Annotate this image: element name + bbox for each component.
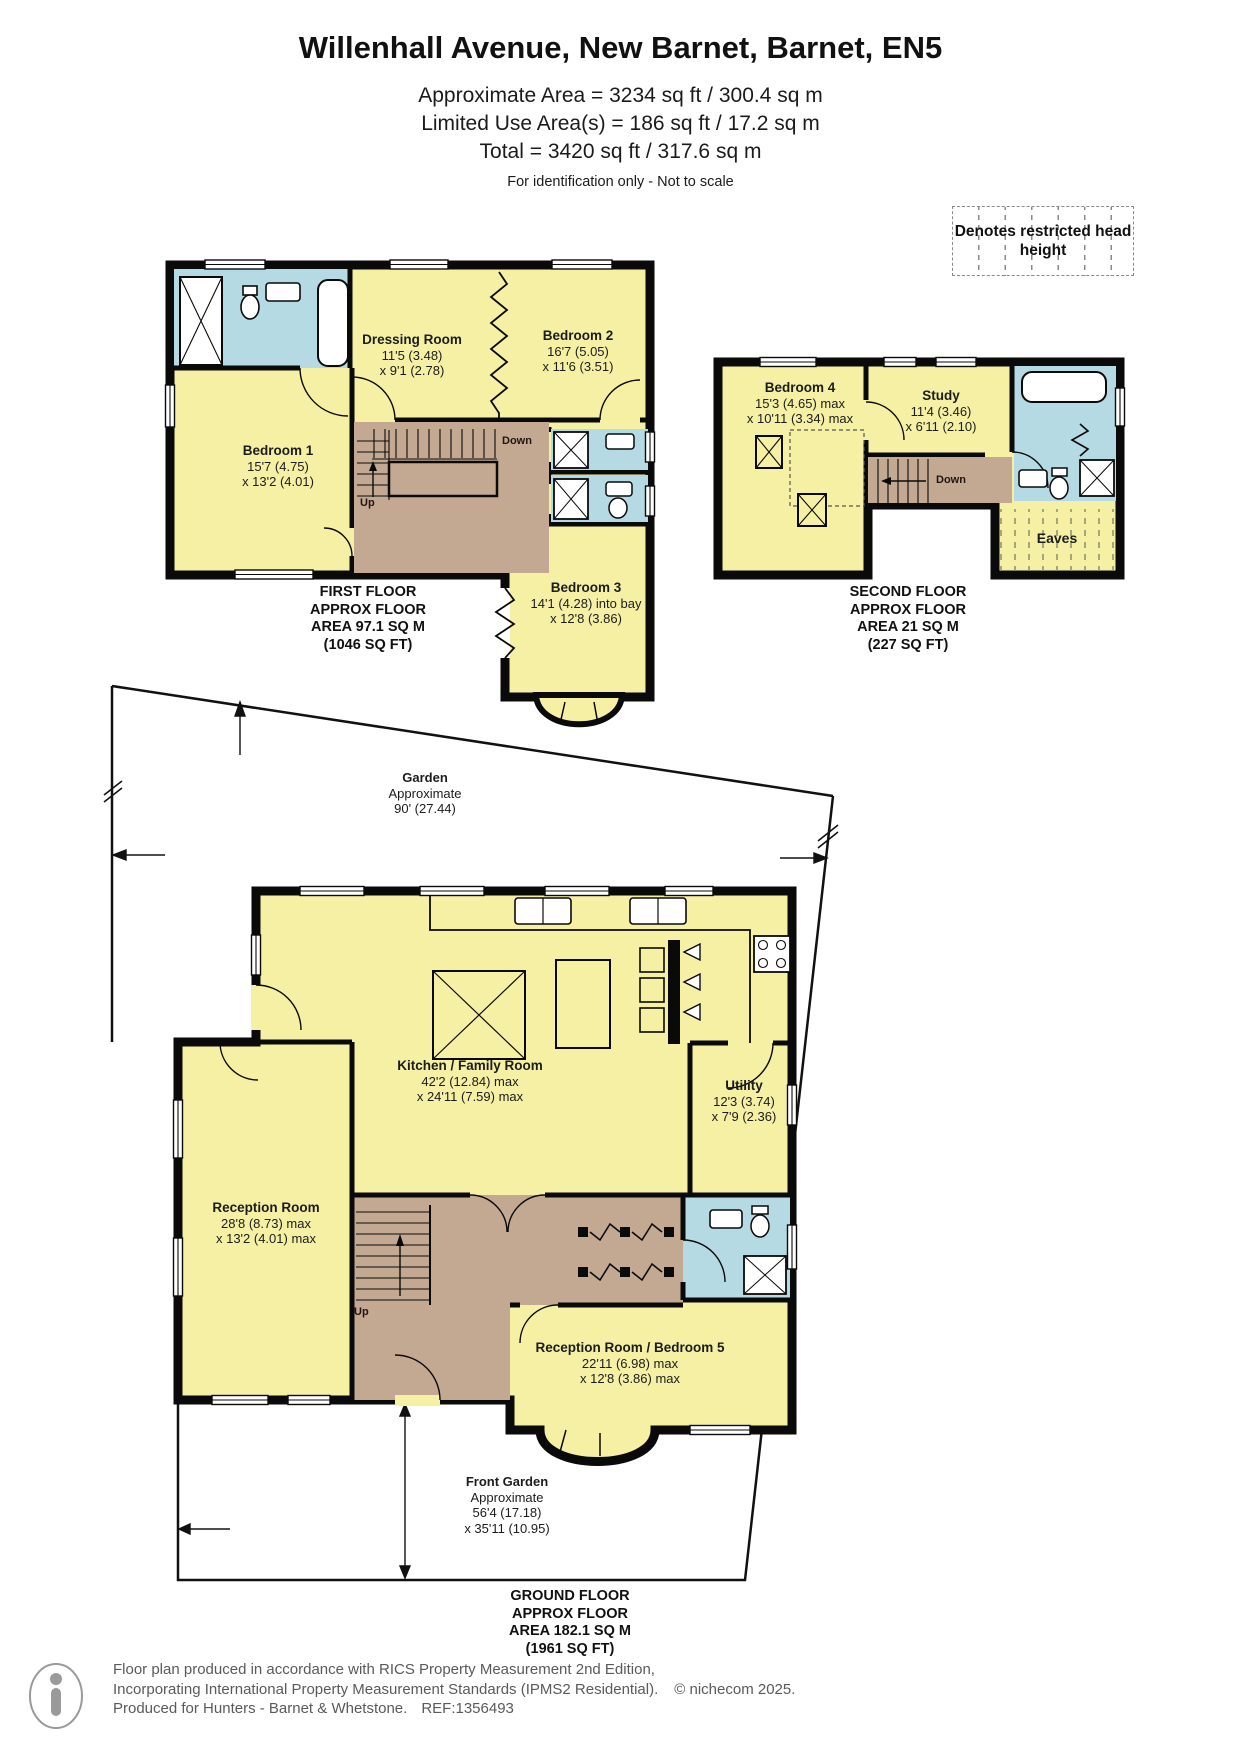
caption-line: (1961 SQ FT) (509, 1641, 631, 1659)
footer-line2: Incorporating International Property Mea… (113, 1680, 795, 1700)
hob-icon (754, 936, 790, 972)
front-garden-dims: 56'4 (17.18) (464, 1505, 549, 1521)
room-dims: x 11'6 (3.51) (543, 359, 614, 375)
footer-produced-for: Produced for Hunters - Barnet & Whetston… (113, 1700, 407, 1717)
restricted-head-height-legend: Denotes restricted head height (952, 206, 1134, 276)
bath-icon (318, 280, 348, 366)
approximate-area-line: Approximate Area = 3234 sq ft / 300.4 sq… (0, 84, 1241, 108)
front-garden-name: Front Garden (464, 1474, 549, 1490)
room-label-bedroom2: Bedroom 2 16'7 (5.05) x 11'6 (3.51) (543, 328, 614, 375)
footer: Floor plan produced in accordance with R… (113, 1660, 795, 1719)
room-name: Dressing Room (362, 332, 462, 348)
shower-rooms (551, 429, 648, 522)
front-garden-dims: Approximate (464, 1490, 549, 1506)
eaves-label: Eaves (1037, 530, 1077, 546)
room-dims: 22'11 (6.98) max (535, 1356, 724, 1372)
room-dims: 11'5 (3.48) (362, 348, 462, 364)
room-dims: x 24'11 (7.59) max (397, 1089, 543, 1105)
ground-floor-bathroom (683, 1195, 790, 1300)
room-name: Bedroom 1 (242, 443, 314, 459)
room-label-kitchen-family: Kitchen / Family Room 42'2 (12.84) max x… (397, 1058, 543, 1105)
kitchen-sink-icon (630, 898, 686, 924)
room-dims: x 13'2 (4.01) (242, 474, 314, 490)
caption-line: APPROX FLOOR (509, 1606, 631, 1624)
second-floor-caption: SECOND FLOOR APPROX FLOOR AREA 21 SQ M (… (850, 584, 967, 654)
room-dims: x 7'9 (2.36) (712, 1109, 777, 1125)
front-garden-dims: x 35'11 (10.95) (464, 1521, 549, 1537)
front-door-gap (395, 1395, 440, 1406)
room-label-bedroom1: Bedroom 1 15'7 (4.75) x 13'2 (4.01) (242, 443, 314, 490)
stair-label-up: Up (360, 497, 375, 509)
front-garden-label: Front Garden Approximate 56'4 (17.18) x … (464, 1474, 549, 1536)
footer-line3: Produced for Hunters - Barnet & Whetston… (113, 1699, 795, 1719)
toilet-icon (752, 1206, 768, 1214)
room-label-dressing-room: Dressing Room 11'5 (3.48) x 9'1 (2.78) (362, 332, 462, 379)
caption-line: (1046 SQ FT) (310, 637, 426, 655)
footer-line1: Floor plan produced in accordance with R… (113, 1660, 795, 1680)
room-dims: 15'7 (4.75) (242, 459, 314, 475)
bath-icon (1022, 372, 1106, 402)
garden-dims: 90' (27.44) (389, 801, 462, 817)
caption-line: APPROX FLOOR (850, 602, 967, 620)
room-name: Utility (712, 1078, 777, 1094)
garden-dims: Approximate (389, 786, 462, 802)
stair-label-down: Down (936, 474, 966, 486)
window-gap (499, 588, 510, 658)
door-gap (251, 985, 262, 1030)
sink-icon (1019, 470, 1047, 487)
stair-label-up: Up (354, 1306, 369, 1318)
toilet-icon (1052, 468, 1067, 476)
room-name: Study (906, 388, 977, 404)
caption-line: FIRST FLOOR (310, 584, 426, 602)
room-dims: 28'8 (8.73) max (212, 1216, 319, 1232)
disclaimer-text: For identification only - Not to scale (0, 174, 1241, 190)
caption-line: (227 SQ FT) (850, 637, 967, 655)
sink-icon (266, 283, 300, 301)
garden-label: Garden Approximate 90' (27.44) (389, 770, 462, 817)
stair-label-down: Down (502, 435, 532, 447)
room-dims: 12'3 (3.74) (712, 1094, 777, 1110)
footer-copyright: © nichecom 2025. (674, 1681, 795, 1698)
person-scale-icon (26, 1662, 90, 1732)
toilet-icon (243, 286, 257, 295)
sink-icon (606, 482, 632, 496)
room-dims: 16'7 (5.05) (543, 344, 614, 360)
room-name: Kitchen / Family Room (397, 1058, 543, 1074)
first-floor-caption: FIRST FLOOR APPROX FLOOR AREA 97.1 SQ M … (310, 584, 426, 654)
total-area-line: Total = 3420 sq ft / 317.6 sq m (0, 140, 1241, 164)
kitchen-island (556, 960, 610, 1048)
caption-line: APPROX FLOOR (310, 602, 426, 620)
room-dims: x 13'2 (4.01) max (212, 1231, 319, 1247)
second-floor-bathroom (1012, 366, 1116, 501)
ground-floor-plan (95, 675, 855, 1590)
room-dims: 15'3 (4.65) max (747, 396, 853, 412)
room-dims: 42'2 (12.84) max (397, 1074, 543, 1090)
sink-icon (606, 434, 634, 449)
kitchen-table (433, 971, 525, 1059)
caption-line: AREA 21 SQ M (850, 619, 967, 637)
footer-reference: REF:1356493 (421, 1700, 514, 1717)
room-dims: 11'4 (3.46) (906, 404, 977, 420)
room-dims: x 12'8 (3.86) max (535, 1371, 724, 1387)
limited-use-area-line: Limited Use Area(s) = 186 sq ft / 17.2 s… (0, 112, 1241, 136)
room-name: Reception Room / Bedroom 5 (535, 1340, 724, 1356)
room-name: Bedroom 4 (747, 380, 853, 396)
floorplan-page: Willenhall Avenue, New Barnet, Barnet, E… (0, 0, 1241, 1755)
room-dims: x 6'11 (2.10) (906, 419, 977, 435)
room-label-bedroom3: Bedroom 3 14'1 (4.28) into bay x 12'8 (3… (531, 580, 642, 627)
room-dims: x 12'8 (3.86) (531, 611, 642, 627)
room-label-study: Study 11'4 (3.46) x 6'11 (2.10) (906, 388, 977, 435)
ground-floor-caption: GROUND FLOOR APPROX FLOOR AREA 182.1 SQ … (509, 1588, 631, 1658)
garden-name: Garden (389, 770, 462, 786)
room-dims: 14'1 (4.28) into bay (531, 596, 642, 612)
caption-line: AREA 97.1 SQ M (310, 619, 426, 637)
room-label-reception: Reception Room 28'8 (8.73) max x 13'2 (4… (212, 1200, 319, 1247)
room-label-utility: Utility 12'3 (3.74) x 7'9 (2.36) (712, 1078, 777, 1125)
legend-text: Denotes restricted head height (953, 222, 1133, 260)
room-label-bedroom4: Bedroom 4 15'3 (4.65) max x 10'11 (3.34)… (747, 380, 853, 427)
room-name: Bedroom 3 (531, 580, 642, 596)
room-name: Bedroom 2 (543, 328, 614, 344)
room-dims: x 9'1 (2.78) (362, 363, 462, 379)
page-title: Willenhall Avenue, New Barnet, Barnet, E… (0, 30, 1241, 66)
caption-line: SECOND FLOOR (850, 584, 967, 602)
room-label-reception-bedroom5: Reception Room / Bedroom 5 22'11 (6.98) … (535, 1340, 724, 1387)
caption-line: GROUND FLOOR (509, 1588, 631, 1606)
footer-standards-text: Incorporating International Property Mea… (113, 1681, 658, 1698)
kitchen-sink-icon (515, 898, 571, 924)
room-dims: x 10'11 (3.34) max (747, 411, 853, 427)
sink-icon (710, 1210, 742, 1228)
room-name: Reception Room (212, 1200, 319, 1216)
toilet-icon (609, 498, 627, 518)
caption-line: AREA 182.1 SQ M (509, 1623, 631, 1641)
